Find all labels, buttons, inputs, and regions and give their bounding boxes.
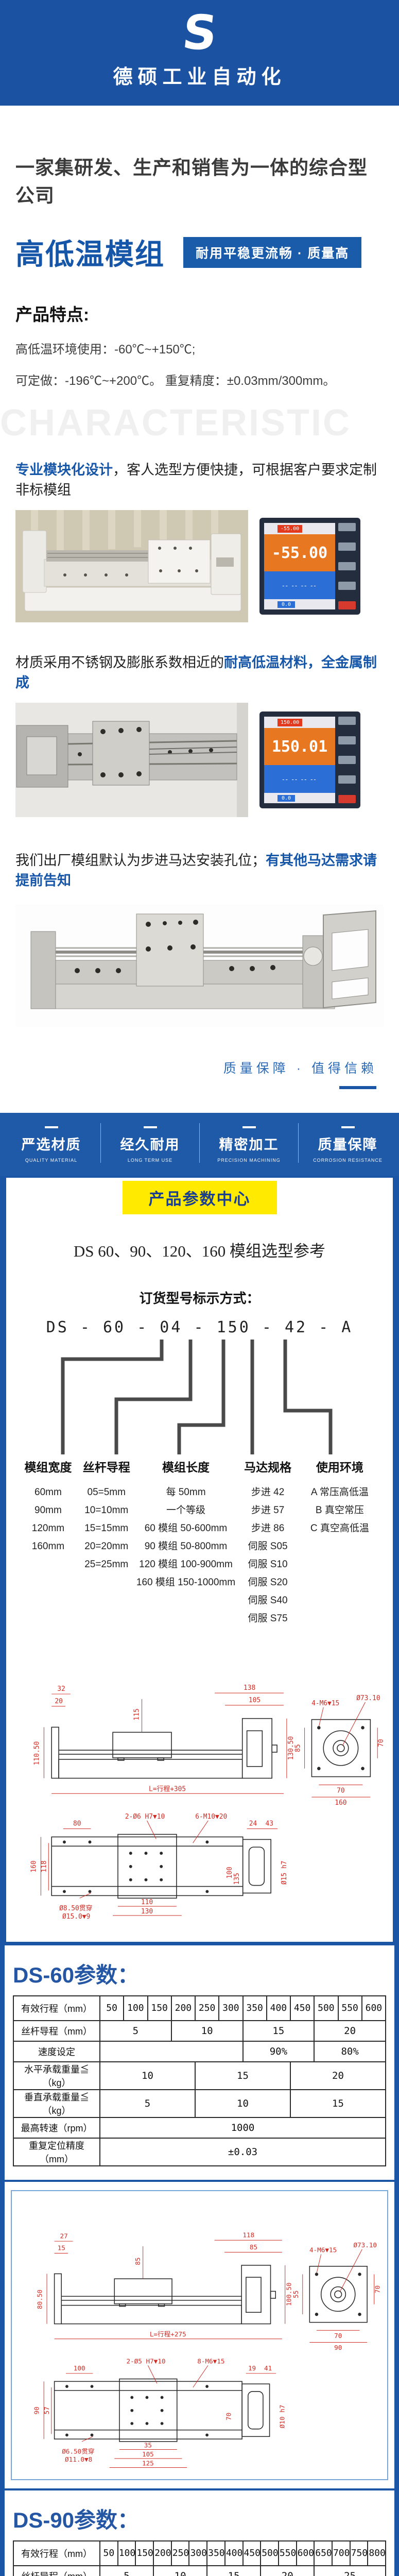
bottom-value-1: 0.0 [277, 601, 295, 608]
spec-cell: 20 [314, 2021, 386, 2041]
list-item: 步进 57 [235, 1501, 300, 1519]
order-code-routing-lines [9, 1338, 390, 1454]
stroke-value: 800 [368, 2541, 386, 2566]
svg-text:115: 115 [133, 1708, 141, 1720]
selection-col-environment: 使用环境 A 常压高低温B 真空常压C 真空高低温 [300, 1458, 379, 1628]
band-feature-title: 精密加工 [200, 1133, 298, 1154]
stroke-value: 550 [279, 2541, 297, 2566]
controller-screen-2: 150.00 150.01 -- -- -- -- 0.0 [264, 717, 335, 803]
order-code-title: 订货型号标示方式： [6, 1288, 393, 1307]
band-feature-item: 严选材质QUALITY MATERIAL [2, 1123, 101, 1163]
svg-text:135: 135 [233, 1873, 241, 1885]
spec-row-label: 重复定位精度（mm） [13, 2138, 100, 2166]
module-photo-white [15, 510, 248, 622]
temp-reading-1: -55.00 [264, 534, 335, 571]
spec-cell: 25 [314, 2566, 386, 2576]
list-item: A 常压高低温 [300, 1483, 379, 1501]
cad-drawing-overview: 32 20 115 138 105 110.50 130.50 L=行程+305… [8, 1643, 391, 1937]
svg-text:100: 100 [226, 1867, 234, 1878]
spec-row-label: 垂直承载重量≦（kg） [13, 2090, 100, 2117]
spec-table-title: DS-90参数： [5, 2495, 394, 2540]
svg-text:100: 100 [74, 2364, 85, 2372]
controller-key-icon [338, 543, 356, 551]
band-feature-item: 精密加工PRECISION MACHINING [200, 1123, 299, 1163]
stroke-value: 100 [124, 1996, 147, 2021]
svg-text:130.50: 130.50 [287, 1736, 295, 1760]
spec-cell: 90% [243, 2041, 315, 2062]
controller-key-icon [338, 717, 356, 725]
selling-point-1: 专业模块化设计，客人选型方便快捷，可根据客户要求定制非标模组 [15, 459, 384, 499]
band-feature-subtitle: LONG TERM USE [101, 1158, 199, 1163]
stroke-value: 150 [148, 1996, 171, 2021]
svg-text:6-M10▼20: 6-M10▼20 [195, 1813, 227, 1821]
spec-cell [100, 2041, 243, 2062]
svg-text:Ø15 h7: Ø15 h7 [281, 1861, 288, 1885]
svg-text:24: 24 [249, 1820, 257, 1828]
spec-row-label: 有效行程（mm） [13, 1996, 100, 2021]
selection-columns: 模组宽度 60mm90mm120mm160mm 丝杆导程 05=5mm10=10… [6, 1454, 393, 1628]
list-item: 伺服 S20 [235, 1573, 300, 1591]
stroke-value: 700 [332, 2541, 350, 2566]
svg-text:Ø6.50贯穿: Ø6.50贯穿 [62, 2447, 94, 2455]
spec-cell: 15 [243, 2021, 315, 2041]
stroke-value: 600 [362, 1996, 386, 2021]
svg-text:L=行程+305: L=行程+305 [149, 1785, 186, 1793]
module-photo-steel [15, 703, 248, 817]
features-heading: 产品特点: [15, 301, 384, 326]
svg-text:118: 118 [40, 1860, 48, 1872]
selling-point-2: 材质采用不锈钢及膨胀系数相近的耐高低温材料，全金属制成 [15, 651, 384, 691]
band-feature-subtitle: CORROSION RESISTANCE [299, 1158, 397, 1163]
stroke-value: 300 [189, 2541, 207, 2566]
spec-cell: 80% [314, 2041, 386, 2062]
spec-table-title: DS-60参数： [5, 1950, 394, 1995]
module-photo-steel-art [15, 703, 248, 817]
list-item: 60 模组 50-600mm [136, 1519, 236, 1537]
selection-col-header: 马达规格 [235, 1458, 300, 1475]
svg-text:138: 138 [244, 1684, 255, 1692]
list-item: 伺服 S40 [235, 1591, 300, 1609]
dash-icon [242, 1126, 256, 1128]
band-feature-title: 严选材质 [2, 1133, 100, 1154]
dash-icon [341, 1126, 355, 1128]
stroke-value: 450 [243, 2541, 261, 2566]
photo-row-1: -55.00 -55.00 -- -- -- -- 0.0 [15, 510, 384, 622]
module-photo-large-art [15, 905, 384, 1027]
svg-text:70: 70 [377, 1739, 385, 1747]
svg-text:20: 20 [55, 1698, 62, 1705]
controller-topbar-2: 150.00 [264, 717, 335, 728]
stroke-value: 250 [171, 2541, 189, 2566]
controller-key-icon [338, 582, 356, 590]
selection-col-header: 丝杆导程 [77, 1458, 136, 1475]
selling-point-2-rest: 材质采用不锈钢及膨胀系数相近的 [15, 655, 224, 670]
feature-line-2: 可定做：-196℃~+200℃。 重复精度：±0.03mm/300mm。 [15, 370, 384, 388]
list-item: 160mm [20, 1537, 77, 1555]
spec-cell: 10 [171, 2021, 243, 2041]
list-item: 每 50mm 一个等级 [136, 1483, 236, 1519]
spec-cell: 10 [153, 2566, 207, 2576]
list-item: 120mm [20, 1519, 77, 1537]
list-item: B 真空常压 [300, 1501, 379, 1519]
selection-col-list: 每 50mm 一个等级60 模组 50-600mm90 模组 50-800mm1… [136, 1483, 236, 1591]
svg-text:55: 55 [292, 2290, 300, 2298]
intro-section: 一家集研发、生产和销售为一体的综合型公司 高低温模组 耐用平稳更流畅 · 质量高… [0, 152, 399, 1089]
controller-key-icon [338, 736, 356, 744]
module-photo-white-art [15, 510, 248, 622]
stroke-value: 100 [118, 2541, 136, 2566]
svg-text:80: 80 [73, 1820, 81, 1828]
stroke-value: 150 [135, 2541, 153, 2566]
svg-text:125: 125 [142, 2459, 154, 2467]
spec-row-label: 丝杆导程（mm） [13, 2566, 100, 2576]
svg-text:19: 19 [248, 2364, 256, 2372]
list-item: 60mm [20, 1483, 77, 1501]
band-feature-item: 质量保障CORROSION RESISTANCE [299, 1123, 397, 1163]
selling-point-3-rest: 我们出厂模组默认为步进马达安装孔位； [15, 853, 266, 868]
stroke-value: 600 [297, 2541, 315, 2566]
spec-row-label: 丝杆导程（mm） [13, 2021, 100, 2041]
svg-text:15: 15 [58, 2244, 65, 2251]
selling-point-1-highlight: 专业模块化设计 [15, 462, 113, 478]
svg-text:L=行程+275: L=行程+275 [150, 2330, 186, 2338]
svg-text:90: 90 [334, 2344, 342, 2351]
page-header: S 德硕工业自动化 [0, 0, 399, 106]
band-feature-item: 经久耐用LONG TERM USE [101, 1123, 200, 1163]
param-center-box: 产品参数中心 DS 60、90、120、160 模组选型参考 订货型号标示方式：… [5, 1176, 394, 1943]
spec-cell: 20 [261, 2566, 314, 2576]
cad-drawing-art: 27 15 85 118 85 80.50 100.50 L=行程+275 4-… [12, 2191, 387, 2479]
stroke-value: 200 [153, 2541, 171, 2566]
list-item: 05=5mm [77, 1483, 136, 1501]
selection-col-list: A 常压高低温B 真空常压C 真空高低温 [300, 1483, 379, 1537]
spec-table: 有效行程（mm）50100150200250300350400450500550… [13, 2540, 386, 2576]
selection-col-list: 步进 42步进 57步进 86伺服 S05伺服 S10伺服 S20伺服 S40伺… [235, 1483, 300, 1628]
svg-text:70: 70 [337, 1787, 344, 1794]
dash-icon [144, 1126, 157, 1128]
spec-cell: 15 [195, 2062, 290, 2090]
stroke-value: 500 [261, 2541, 279, 2566]
list-item: 15=15mm [77, 1519, 136, 1537]
svg-text:160: 160 [335, 1799, 346, 1807]
list-item: 90mm [20, 1501, 77, 1519]
controller-key-icon [338, 775, 356, 784]
svg-text:118: 118 [242, 2231, 254, 2239]
dash-icon [45, 1126, 58, 1128]
band-feature-subtitle: QUALITY MATERIAL [2, 1158, 100, 1163]
svg-text:110.50: 110.50 [33, 1741, 41, 1765]
stroke-value: 300 [219, 1996, 242, 2021]
selection-col-header: 模组长度 [136, 1458, 236, 1475]
selection-col-lead: 丝杆导程 05=5mm10=10mm15=15mm20=20mm25=25mm [77, 1458, 136, 1628]
ds90-section: DS-90参数：有效行程（mm）501001502002503003504004… [5, 2490, 394, 2576]
controller-key-icon [338, 523, 356, 531]
spec-cell: 15 [290, 2090, 386, 2117]
order-model-code: DS - 60 - 04 - 150 - 42 - A [6, 1318, 393, 1336]
list-item: 25=25mm [77, 1555, 136, 1573]
section-divider [5, 2180, 394, 2182]
spec-row-label: 速度设定 [13, 2041, 100, 2062]
spec-cell: 5 [100, 2021, 171, 2041]
trust-underline [339, 1086, 376, 1089]
controller-botbar-2: 0.0 [264, 793, 335, 803]
svg-text:85: 85 [294, 1744, 302, 1752]
controller-keys-2 [338, 717, 356, 803]
controller-topbar-1: -55.00 [264, 523, 335, 534]
selection-col-list: 05=5mm10=10mm15=15mm20=20mm25=25mm [77, 1483, 136, 1573]
spec-table: 有效行程（mm）50100150200250300350400450500550… [13, 1995, 386, 2166]
list-item: 步进 86 [235, 1519, 300, 1537]
selection-reference-title: DS 60、90、120、160 模组选型参考 [6, 1238, 393, 1261]
selection-col-width: 模组宽度 60mm90mm120mm160mm [20, 1458, 77, 1628]
temp-reading-2: 150.01 [264, 728, 335, 765]
svg-text:Ø73.10: Ø73.10 [353, 2241, 377, 2248]
feature-line-1: 高低温环境使用：-60℃~+150℃; [15, 339, 384, 357]
band-feature-subtitle: PRECISION MACHINING [200, 1158, 298, 1163]
svg-text:130: 130 [141, 1908, 153, 1916]
product-title-row: 高低温模组 耐用平稳更流畅 · 质量高 [15, 231, 384, 273]
list-item: 90 模组 50-800mm [136, 1537, 236, 1555]
band-feature-title: 质量保障 [299, 1133, 397, 1154]
controller-key-icon [338, 756, 356, 764]
humidity-area-2: -- -- -- -- [264, 765, 335, 793]
stroke-value: 550 [338, 1996, 362, 2021]
controller-stop-key-icon [338, 601, 356, 609]
product-title: 高低温模组 [15, 231, 165, 273]
selection-col-length: 模组长度 每 50mm 一个等级60 模组 50-600mm90 模组 50-8… [136, 1458, 236, 1628]
svg-text:4-M6▼15: 4-M6▼15 [311, 1700, 339, 1707]
svg-text:41: 41 [264, 2364, 272, 2372]
list-item: 120 模组 100-900mm [136, 1555, 236, 1573]
list-item: 160 模组 150-1000mm [136, 1573, 236, 1591]
svg-text:2-Ø5 H7▼10: 2-Ø5 H7▼10 [126, 2357, 165, 2365]
list-item: 伺服 S10 [235, 1555, 300, 1573]
list-item: C 真空高低温 [300, 1519, 379, 1537]
quality-badge: 耐用平稳更流畅 · 质量高 [183, 237, 361, 268]
list-item: 步进 42 [235, 1483, 300, 1501]
spec-cell: 15 [207, 2566, 261, 2576]
svg-text:85: 85 [250, 2243, 257, 2250]
svg-text:105: 105 [249, 1697, 261, 1704]
svg-text:35: 35 [144, 2441, 152, 2449]
selection-col-list: 60mm90mm120mm160mm [20, 1483, 77, 1555]
controller-screen-1: -55.00 -55.00 -- -- -- -- 0.0 [264, 523, 335, 609]
stroke-value: 350 [243, 1996, 267, 2021]
list-item: 伺服 S05 [235, 1537, 300, 1555]
selection-col-header: 模组宽度 [20, 1458, 77, 1475]
selling-point-3: 我们出厂模组默认为步进马达安装孔位；有其他马达需求请提前告知 [15, 849, 384, 889]
svg-text:Ø10 h7: Ø10 h7 [279, 2404, 286, 2428]
stroke-value: 200 [171, 1996, 195, 2021]
controller-key-icon [338, 562, 356, 570]
stroke-value: 750 [350, 2541, 368, 2566]
spec-cell: 5 [100, 2566, 153, 2576]
temp-controller-photo-2: 150.00 150.01 -- -- -- -- 0.0 [259, 711, 360, 808]
humidity-area-1: -- -- -- -- [264, 571, 335, 599]
controller-stop-key-icon [338, 795, 356, 803]
spec-cell: 1000 [100, 2117, 386, 2138]
svg-text:Ø15.0▼9: Ø15.0▼9 [62, 1913, 90, 1921]
company-name: 德硕工业自动化 [0, 61, 399, 89]
cad-drawing-2: 27 15 85 118 85 80.50 100.50 L=行程+275 4-… [11, 2190, 388, 2480]
svg-text:Ø8.50贯穿: Ø8.50贯穿 [59, 1904, 92, 1912]
stroke-value: 400 [267, 1996, 290, 2021]
svg-text:70: 70 [373, 2285, 381, 2293]
spec-row-label: 最高转速（rpm） [13, 2117, 100, 2138]
spec-cell: ±0.03 [100, 2138, 386, 2166]
spec-cell: 10 [195, 2090, 290, 2117]
svg-text:85: 85 [134, 2257, 142, 2265]
svg-text:Ø11.0▼8: Ø11.0▼8 [65, 2455, 92, 2463]
stroke-value: 50 [100, 1996, 124, 2021]
svg-text:57: 57 [43, 2406, 50, 2414]
company-tagline: 一家集研发、生产和销售为一体的综合型公司 [15, 152, 384, 208]
svg-text:4-M6▼15: 4-M6▼15 [309, 2246, 337, 2253]
main-frame: 产品参数中心 DS 60、90、120、160 模组选型参考 订货型号标示方式：… [0, 1176, 399, 2576]
spec-cell: 20 [290, 2062, 386, 2090]
spec-row-label: 水平承载重量≦（kg） [13, 2062, 100, 2090]
svg-text:160: 160 [30, 1860, 38, 1872]
param-center-title: 产品参数中心 [123, 1181, 277, 1214]
temp-controller-photo-1: -55.00 -55.00 -- -- -- -- 0.0 [259, 518, 360, 615]
stroke-value: 50 [100, 2541, 118, 2566]
svg-text:110: 110 [141, 1899, 153, 1906]
spec-cell: 5 [100, 2090, 195, 2117]
cad-drawing-art: 32 20 115 138 105 110.50 130.50 L=行程+305… [8, 1643, 391, 1937]
ds60-section: DS-60参数：有效行程（mm）501001502002503003504004… [5, 1945, 394, 2180]
svg-text:Ø73.10: Ø73.10 [356, 1694, 380, 1702]
svg-text:105: 105 [142, 2450, 154, 2458]
stroke-value: 450 [290, 1996, 314, 2021]
svg-text:27: 27 [60, 2232, 67, 2240]
module-photo-large [15, 905, 384, 1027]
characteristic-watermark: CHARACTERISTIC [0, 402, 399, 444]
selection-col-motor: 马达规格 步进 42步进 57步进 86伺服 S05伺服 S10伺服 S20伺服… [235, 1458, 300, 1628]
features-band: 严选材质QUALITY MATERIAL经久耐用LONG TERM USE精密加… [0, 1113, 399, 1176]
trust-slogan: 质量保障 · 值得信赖 [15, 1058, 384, 1077]
spec-row-label: 有效行程（mm） [13, 2541, 100, 2566]
set-value-1: -55.00 [277, 525, 302, 533]
bottom-value-2: 0.0 [277, 795, 295, 802]
svg-text:43: 43 [265, 1820, 273, 1828]
list-item: 20=20mm [77, 1537, 136, 1555]
selection-col-header: 使用环境 [300, 1458, 379, 1475]
band-feature-title: 经久耐用 [101, 1133, 199, 1154]
stroke-value: 500 [314, 1996, 338, 2021]
photo-row-2: 150.00 150.01 -- -- -- -- 0.0 [15, 703, 384, 817]
svg-text:8-M6▼15: 8-M6▼15 [197, 2357, 224, 2365]
svg-text:80.50: 80.50 [36, 2290, 43, 2309]
stroke-value: 250 [195, 1996, 219, 2021]
controller-keys-1 [338, 523, 356, 609]
stroke-value: 350 [207, 2541, 225, 2566]
svg-text:70: 70 [334, 2331, 342, 2339]
controller-botbar-1: 0.0 [264, 599, 335, 609]
stroke-value: 400 [225, 2541, 243, 2566]
spec-cell: 10 [100, 2062, 195, 2090]
svg-text:32: 32 [57, 1685, 65, 1693]
svg-text:70: 70 [225, 2412, 233, 2420]
company-logo-icon: S [174, 9, 226, 57]
list-item: 10=10mm [77, 1501, 136, 1519]
set-value-2: 150.00 [277, 719, 302, 726]
svg-text:90: 90 [32, 2406, 40, 2414]
list-item: 伺服 S75 [235, 1609, 300, 1628]
svg-text:2-Ø6 H7▼10: 2-Ø6 H7▼10 [125, 1813, 165, 1821]
stroke-value: 650 [314, 2541, 332, 2566]
